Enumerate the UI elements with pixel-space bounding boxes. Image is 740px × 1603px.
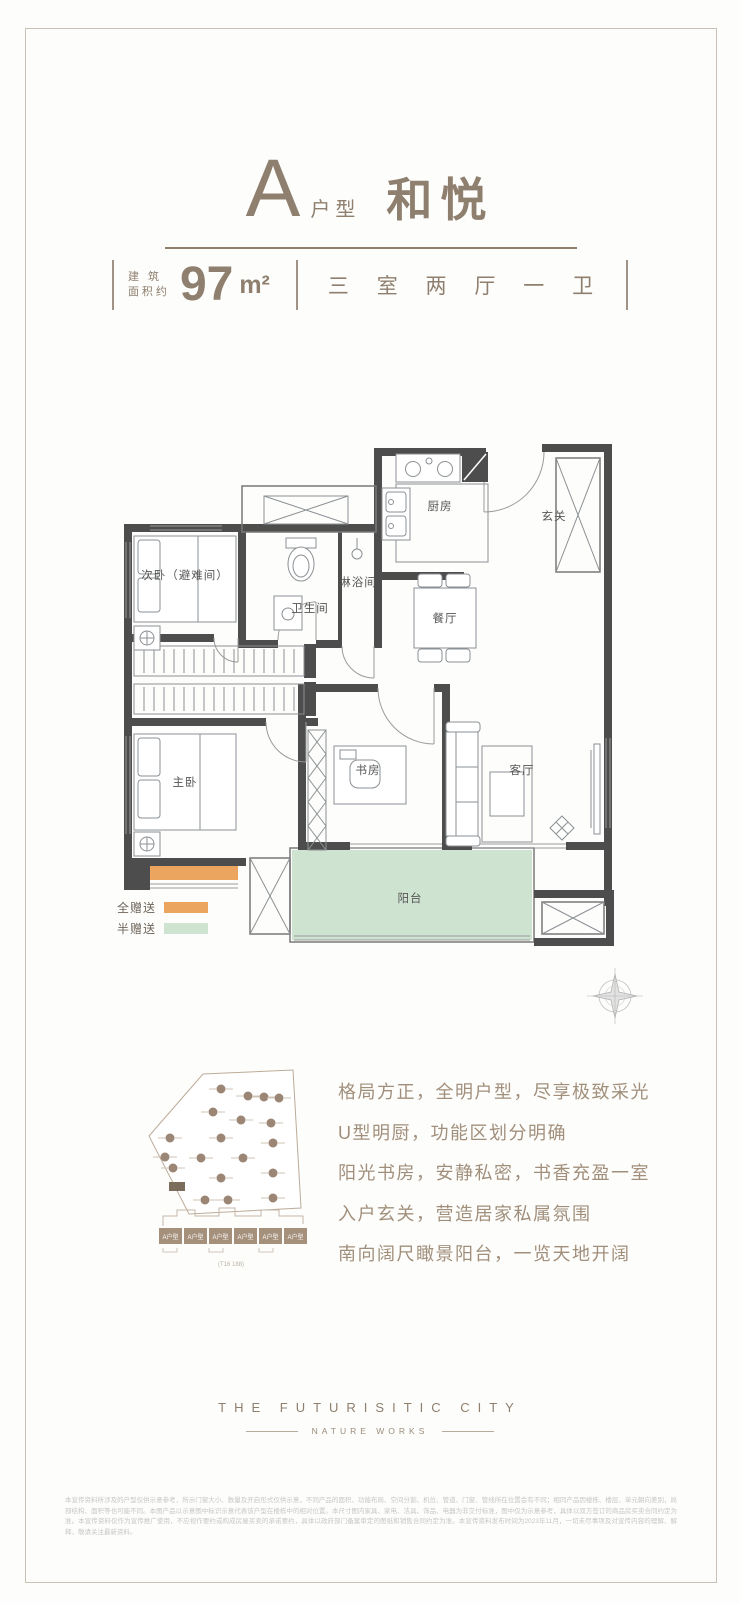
tagline-text: NATURE WORKS: [312, 1426, 429, 1436]
room-label-study: 书房: [356, 764, 381, 777]
area-label-bottom: 面积约: [128, 285, 170, 300]
brand-tagline: NATURE WORKS: [0, 1426, 740, 1436]
unit-block-label: A户型: [287, 1233, 303, 1241]
siteplan-caption: (T16 188): [218, 1262, 244, 1268]
room-label-foyer: 玄关: [542, 509, 567, 523]
page-title: A 户型 和悦: [0, 148, 740, 230]
living-furniture: [446, 722, 600, 846]
feature-item: U型明厨，功能区划分明确: [338, 1113, 650, 1154]
room-label-second-bedroom: 次卧（避难间）: [141, 568, 229, 582]
area-labels: 建 筑 面积约: [128, 270, 170, 300]
plan-word: 户型: [310, 193, 360, 222]
floorplan: 次卧（避难间） 卫生间 淋浴间 厨房 玄关 餐厅 主卧 书房 客厅 阳台: [110, 388, 622, 959]
room-label-kitchen: 厨房: [428, 500, 453, 513]
spec-divider-middle: [296, 260, 298, 310]
siteplan-section-strip: A户型 A户型 A户型 A户型 A户型 A户型 (T16 188): [159, 1208, 307, 1268]
compass-icon: [585, 966, 645, 1031]
unit-block-label: A户型: [187, 1233, 203, 1241]
legend-full-gift-swatch: [164, 902, 208, 913]
room-label-balcony: 阳台: [398, 891, 423, 905]
feature-item: 阳光书房，安静私密，书香充盈一室: [338, 1153, 650, 1194]
legend-half-gift-swatch: [164, 923, 208, 934]
feature-list: 格局方正，全明户型，尽享极致采光 U型明厨，功能区划分明确 阳光书房，安静私密，…: [338, 1072, 650, 1275]
unit-block-label: A户型: [237, 1233, 253, 1241]
legend-half-gift: 半赠送: [117, 920, 208, 936]
siteplan-highlight-block: [169, 1182, 185, 1191]
plan-name: 和悦: [386, 164, 494, 230]
bookshelf: [308, 730, 326, 850]
rooms-spec: 三 室 两 厅 一 卫: [328, 270, 604, 300]
legend-full-gift: 全赠送: [117, 899, 208, 915]
title-divider: [165, 247, 577, 249]
unit-block-label: A户型: [262, 1233, 278, 1241]
room-label-living: 客厅: [510, 763, 535, 777]
area-label-top: 建 筑: [128, 270, 170, 285]
second-bedroom-furniture: [134, 536, 236, 650]
brand-name: THE FUTURISITIC CITY: [0, 1400, 740, 1415]
legend-half-gift-label: 半赠送: [117, 920, 156, 937]
unit-block-label: A户型: [162, 1233, 178, 1241]
disclaimer-text: 本宣传资料所涉及的户型仅供示意参考，所示门窗大小、数量及开启形式仅供示意，不同产…: [65, 1496, 677, 1538]
area-number: 97: [180, 261, 233, 309]
plan-letter: A: [246, 148, 301, 230]
feature-item: 南向阔尺瞰景阳台，一览天地开阔: [338, 1234, 650, 1275]
feature-item: 入户玄关，营造居家私属氛围: [338, 1194, 650, 1235]
bay-window-gift-area: [136, 866, 238, 880]
tagline-line-left: [246, 1431, 298, 1432]
room-label-bathroom: 卫生间: [291, 601, 329, 615]
feature-item: 格局方正，全明户型，尽享极致采光: [338, 1072, 650, 1113]
legend-full-gift-label: 全赠送: [117, 899, 156, 916]
floorplan-drawing: 次卧（避难间） 卫生间 淋浴间 厨房 玄关 餐厅 主卧 书房 客厅 阳台: [110, 388, 622, 954]
room-label-dining: 餐厅: [433, 611, 458, 625]
spec-divider-right: [626, 260, 628, 310]
spec-divider-left: [112, 260, 114, 310]
area-unit: m²: [239, 271, 270, 300]
unit-block-label: A户型: [212, 1233, 228, 1241]
master-bedroom-furniture: [134, 734, 236, 856]
room-label-shower: 淋浴间: [339, 576, 377, 589]
siteplan: A户型 A户型 A户型 A户型 A户型 A户型 (T16 188): [133, 1040, 323, 1277]
gift-legend: 全赠送 半赠送: [117, 899, 208, 941]
tagline-line-right: [442, 1431, 494, 1432]
wardrobe: [134, 646, 304, 714]
room-label-master-bedroom: 主卧: [173, 776, 198, 789]
area-spec: 建 筑 面积约 97 m² 三 室 两 厅 一 卫: [0, 260, 740, 310]
